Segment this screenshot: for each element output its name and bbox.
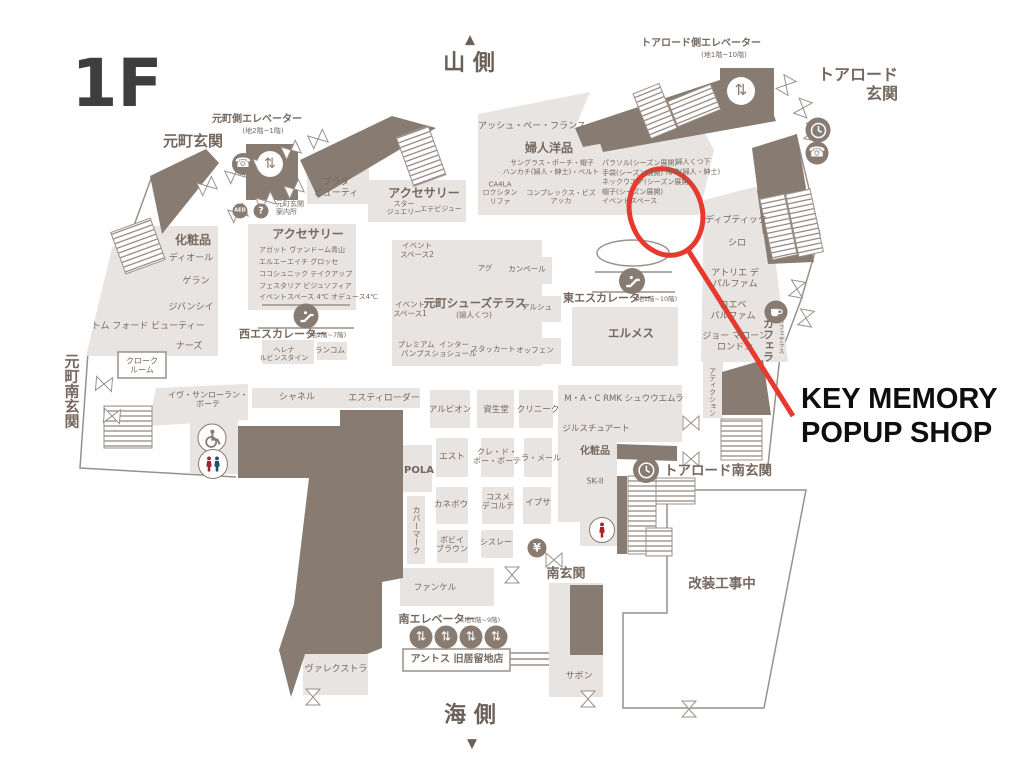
corridor-connectors (510, 653, 549, 665)
floor-plan (0, 0, 1024, 759)
cloakroom-block (118, 352, 166, 378)
anthos-block (403, 649, 510, 671)
annotation-label: KEY MEMORY POPUP SHOP (801, 382, 998, 450)
floor-map: 1F▲山 側海 側▼元町玄関元町側エレベーター(地2階~1階)元町玄関 案内所元… (0, 0, 1024, 759)
